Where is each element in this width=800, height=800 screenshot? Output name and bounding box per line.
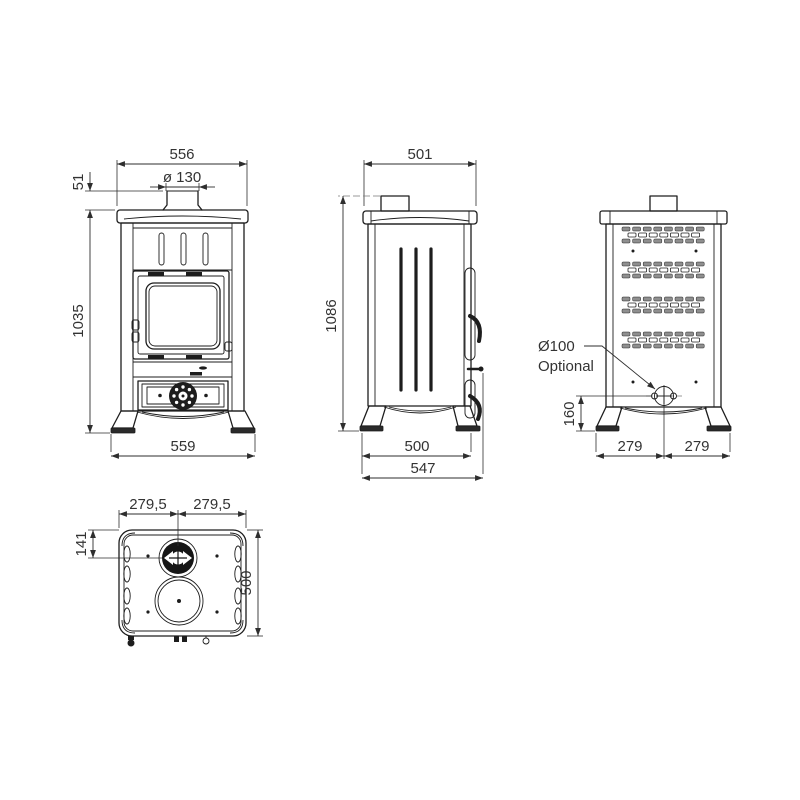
vent-slot — [692, 268, 700, 272]
vent-slot — [681, 303, 689, 307]
side-view: 501 1086 500 547 — [323, 146, 484, 478]
vent-slot — [681, 338, 689, 342]
vent-slot — [639, 303, 647, 307]
vent-slot — [628, 303, 636, 307]
vent-slot — [654, 297, 662, 301]
vent-slot — [633, 297, 641, 301]
vent-slot — [649, 303, 657, 307]
front-door — [132, 271, 232, 360]
front-top-plate — [117, 210, 248, 223]
vent-slot — [622, 274, 630, 278]
vent-slot — [649, 233, 657, 237]
vent-slot — [670, 233, 678, 237]
front-control-band — [133, 362, 232, 377]
vent-slot — [654, 332, 662, 336]
vent-slot — [622, 239, 630, 243]
vent-slot — [686, 309, 694, 313]
vent-slot — [622, 297, 630, 301]
back-body — [606, 224, 721, 407]
vent-slot — [670, 338, 678, 342]
vent-slot — [654, 274, 662, 278]
vent-slot — [664, 227, 672, 231]
dim-side-total-height-value: 1086 — [323, 299, 340, 332]
vent-slot — [633, 262, 641, 266]
vent-slot — [643, 239, 651, 243]
vent-slot — [643, 309, 651, 313]
drawing-svg: 556 ø 130 51 1035 559 — [0, 0, 800, 800]
vent-slot — [696, 332, 704, 336]
vent-slot — [649, 268, 657, 272]
top-view: 279,5 279,5 141 500 — [73, 496, 263, 647]
back-vent-pattern — [622, 227, 704, 348]
dim-front-flue-stub-height-value: 51 — [70, 174, 87, 191]
dim-back-half-widths: 279 279 — [596, 433, 730, 456]
vent-slot — [696, 262, 704, 266]
vent-slot — [696, 274, 704, 278]
vent-slot — [675, 239, 683, 243]
vent-slot — [664, 309, 672, 313]
dim-back-outlet-height-value: 160 — [561, 401, 578, 426]
side-body — [368, 224, 471, 406]
front-flue-pipe — [163, 191, 202, 210]
vent-slot — [654, 227, 662, 231]
dim-front-body-height: 1035 — [70, 210, 110, 433]
vent-slot — [681, 233, 689, 237]
dim-side-foot-span-value: 500 — [404, 438, 429, 455]
vent-slot — [686, 297, 694, 301]
dim-top-half-widths: 279,5 279,5 — [119, 496, 246, 546]
vent-slot — [686, 227, 694, 231]
front-air-control-rosette — [169, 382, 197, 410]
vent-slot — [649, 338, 657, 342]
vent-slot — [654, 309, 662, 313]
dim-top-half-width-left-value: 279,5 — [129, 496, 167, 513]
vent-slot — [622, 344, 630, 348]
vent-slot — [643, 332, 651, 336]
front-door-hinge-plate — [186, 355, 202, 360]
dim-top-half-width-right-value: 279,5 — [193, 496, 231, 513]
vent-slot — [686, 274, 694, 278]
vent-slot — [622, 309, 630, 313]
vent-slot — [633, 309, 641, 313]
back-top-plate — [600, 211, 727, 224]
dim-side-top-depth-value: 501 — [407, 146, 432, 163]
top-flue-collar — [88, 539, 203, 625]
dim-front-flue-stub-height: 51 — [70, 172, 163, 210]
vent-slot — [664, 344, 672, 348]
vent-slot — [633, 239, 641, 243]
vent-slot — [654, 344, 662, 348]
vent-slot — [664, 332, 672, 336]
front-brand-mark — [199, 366, 207, 369]
vent-slot — [681, 268, 689, 272]
vent-slot — [664, 274, 672, 278]
front-door-hinge-plate — [148, 272, 164, 277]
side-legs — [360, 406, 480, 431]
side-panel-grooves — [401, 249, 431, 390]
back-view: Ø100 Optional 160 279 279 — [538, 196, 731, 459]
vent-slot — [675, 309, 683, 313]
dim-front-top-width-value: 556 — [169, 146, 194, 163]
vent-slot — [696, 239, 704, 243]
vent-slot — [643, 274, 651, 278]
vent-slot — [675, 227, 683, 231]
vent-slot — [696, 227, 704, 231]
vent-slot — [670, 268, 678, 272]
vent-slot — [643, 344, 651, 348]
dim-top-depth: 500 — [238, 530, 263, 636]
vent-slot — [696, 344, 704, 348]
back-flue-stub — [650, 196, 677, 211]
vent-slot — [696, 309, 704, 313]
vent-slot — [639, 338, 647, 342]
vent-slot — [692, 303, 700, 307]
dim-front-body-height-value: 1035 — [70, 304, 87, 337]
vent-slot — [660, 338, 668, 342]
vent-slot — [633, 227, 641, 231]
vent-slot — [622, 262, 630, 266]
dim-top-flue-offset-value: 141 — [73, 531, 90, 556]
vent-slot — [675, 297, 683, 301]
dim-side-total-height: 1086 — [323, 196, 380, 431]
vent-slot — [643, 297, 651, 301]
vent-slot — [633, 274, 641, 278]
vent-slot — [686, 344, 694, 348]
vent-slot — [660, 233, 668, 237]
vent-slot — [670, 303, 678, 307]
dim-front-base-width-value: 559 — [170, 438, 195, 455]
stove-technical-drawing: 556 ø 130 51 1035 559 — [0, 0, 800, 800]
vent-slot — [660, 303, 668, 307]
front-band-vent — [190, 372, 202, 376]
side-top-plate — [363, 211, 477, 224]
vent-slot — [660, 268, 668, 272]
dim-back-half-width-right-value: 279 — [684, 438, 709, 455]
vent-slot — [664, 262, 672, 266]
vent-slot — [696, 297, 704, 301]
vent-slot — [622, 332, 630, 336]
front-door-hinge-plate — [186, 272, 202, 277]
top-feet — [128, 636, 210, 647]
dim-front-flue-diameter: ø 130 — [150, 169, 215, 191]
vent-slot — [628, 268, 636, 272]
vent-slot — [675, 262, 683, 266]
dim-back-half-width-left-value: 279 — [617, 438, 642, 455]
vent-slot — [686, 332, 694, 336]
back-legs — [596, 407, 731, 431]
vent-slot — [675, 274, 683, 278]
front-view: 556 ø 130 51 1035 559 — [70, 146, 255, 456]
vent-slot — [664, 297, 672, 301]
back-outlet-diameter-label: Ø100 — [538, 338, 575, 355]
vent-slot — [686, 262, 694, 266]
vent-slot — [654, 262, 662, 266]
dim-front-flue-diameter-value: ø 130 — [163, 169, 201, 186]
vent-slot — [643, 262, 651, 266]
front-air-vent-slots — [159, 233, 208, 265]
dim-front-base-width: 559 — [111, 434, 255, 456]
vent-slot — [633, 344, 641, 348]
vent-slot — [664, 239, 672, 243]
vent-slot — [692, 338, 700, 342]
front-door-hinge-plate — [148, 355, 164, 360]
side-door-handle — [465, 268, 484, 419]
back-outlet-leader-line — [584, 346, 655, 389]
front-legs — [111, 411, 255, 433]
side-flue-stub — [381, 196, 409, 211]
vent-slot — [628, 233, 636, 237]
front-door-glass — [146, 283, 220, 349]
vent-slot — [692, 233, 700, 237]
vent-slot — [622, 227, 630, 231]
dim-top-flue-offset: 141 — [73, 530, 119, 558]
vent-slot — [654, 239, 662, 243]
vent-slot — [675, 344, 683, 348]
back-outlet-note-label: Optional — [538, 358, 594, 375]
vent-slot — [633, 332, 641, 336]
vent-slot — [686, 239, 694, 243]
vent-slot — [675, 332, 683, 336]
vent-slot — [628, 338, 636, 342]
dim-top-depth-value: 500 — [238, 570, 255, 595]
vent-slot — [639, 233, 647, 237]
dim-side-overall-depth-value: 547 — [410, 460, 435, 477]
vent-slot — [639, 268, 647, 272]
vent-slot — [643, 227, 651, 231]
